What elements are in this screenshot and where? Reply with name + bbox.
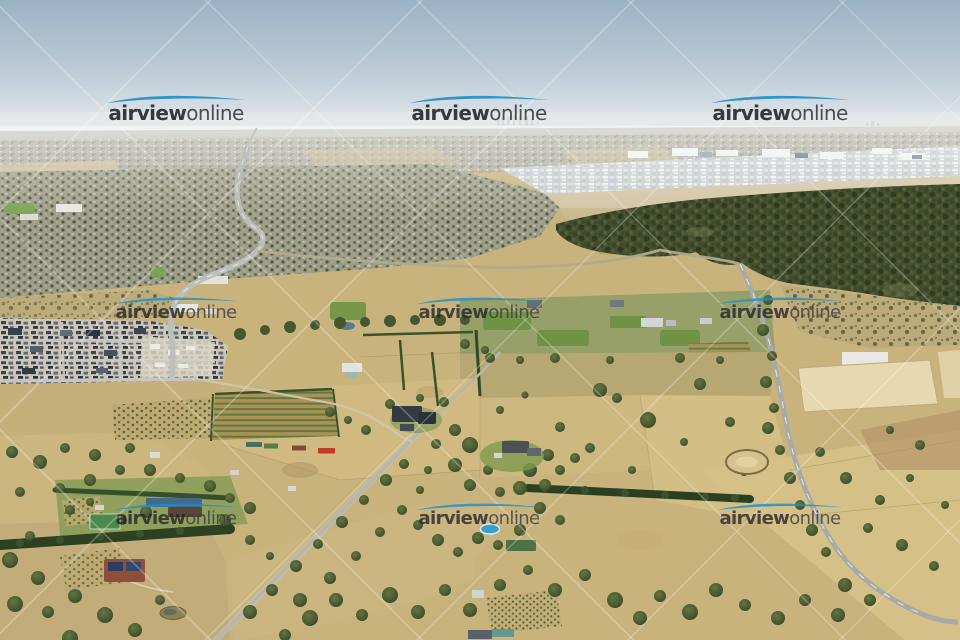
swimming-pool bbox=[481, 524, 500, 534]
blue-roof-house bbox=[146, 498, 202, 507]
homestead-roof bbox=[502, 441, 529, 453]
horse-arena bbox=[798, 360, 938, 412]
estate-south-road bbox=[0, 379, 196, 381]
sky bbox=[0, 0, 960, 140]
garden-properties bbox=[330, 290, 775, 359]
tennis-court-2 bbox=[506, 540, 536, 551]
housing-estate bbox=[0, 318, 228, 384]
tennis-court bbox=[90, 514, 120, 529]
mansion-roof bbox=[392, 406, 422, 422]
aerial-photo-scene bbox=[0, 0, 960, 640]
sports-field bbox=[150, 267, 165, 278]
aerial-photo: airviewonline airviewonline airviewonlin… bbox=[0, 0, 960, 640]
